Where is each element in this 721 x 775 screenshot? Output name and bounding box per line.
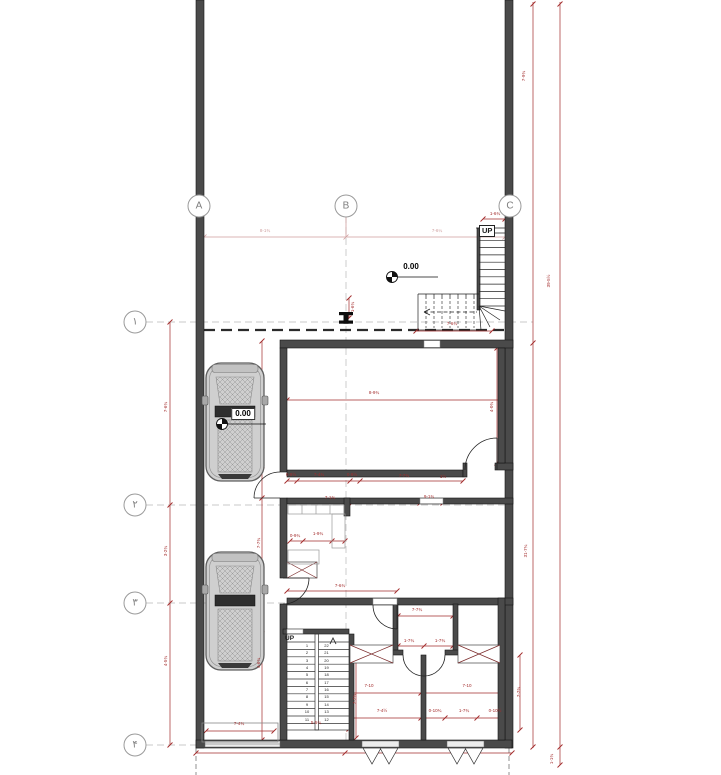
dim-label: 1-6¾: [351, 302, 356, 312]
stair-tread-number: 20: [324, 659, 328, 663]
label-overlay: A B C ۱ ۲ ۳ ۴ UP UP 0.00 0.00 8-1¾7-6¼1-…: [0, 0, 721, 775]
dim-label: 3-2¾: [164, 546, 169, 556]
dim-label: 7-7¾: [517, 687, 522, 697]
stair-tread-number: 21: [324, 651, 328, 655]
grid-bubble-a: A: [188, 195, 211, 218]
dim-label: 4-0¾: [490, 402, 495, 412]
stair-bottom-up-label: UP: [285, 636, 294, 643]
dim-label: 7-6¾: [164, 402, 169, 412]
dim-label: 1½: [440, 475, 446, 480]
dim-label: 7-6¼: [432, 229, 442, 234]
stair-tread-number: 11: [305, 718, 309, 722]
stair-tread-number: 14: [324, 703, 328, 707]
stair-tread-number: 3: [306, 659, 308, 663]
dim-label: 0-10½: [489, 709, 502, 714]
dim-label: 7-10: [364, 684, 373, 689]
stair-tread-number: 2: [306, 651, 308, 655]
level-marker-garage: 0.00: [231, 408, 255, 420]
dim-label: 0-9½: [347, 473, 357, 478]
dim-label: 7-7¾: [412, 608, 422, 613]
stair-tread-number: 6: [306, 681, 308, 685]
dim-label: 7-4¾: [234, 722, 244, 727]
stair-tread-number: 22: [324, 644, 328, 648]
stair-tread-number: 9: [306, 703, 308, 707]
grid-bubble-c: C: [499, 195, 522, 218]
stair-tread-number: 13: [324, 710, 328, 714]
stair-tread-number: 17: [324, 681, 328, 685]
dim-label: 0-10¾: [429, 709, 442, 714]
dim-label: 7-4¾: [314, 473, 324, 478]
stair-tread-number: 7: [306, 688, 308, 692]
stair-tread-number: 5: [306, 673, 308, 677]
dim-label: 7-10: [462, 684, 471, 689]
dim-label: 8-1¾: [260, 229, 270, 234]
dim-label: 8-9¾: [369, 391, 379, 396]
stair-tread-number: 4: [306, 666, 308, 670]
dim-label: 1-7¾: [435, 639, 445, 644]
stair-tread-number: 1: [306, 644, 308, 648]
dim-label: 0-9¾: [290, 534, 300, 539]
dim-label: 0-9½: [286, 473, 296, 478]
dim-label: 39-5½: [547, 275, 552, 288]
dim-label: 9-1¾: [424, 495, 434, 500]
dim-label: 7-7¾: [353, 694, 358, 704]
dim-label: 7-6¾: [335, 584, 345, 589]
grid-bubble-b: B: [335, 195, 358, 218]
dim-label: 7-9¾: [522, 71, 527, 81]
dim-label: 7-6¾: [447, 322, 457, 327]
stair-tread-number: 10: [305, 710, 309, 714]
grid-bubble-3: ۳: [124, 592, 147, 615]
dim-label: 1-7¾: [459, 709, 469, 714]
grid-bubble-4: ۴: [124, 734, 147, 757]
grid-bubble-1: ۱: [124, 311, 147, 334]
stair-top-up-label: UP: [479, 225, 495, 237]
level-marker-entry: 0.00: [403, 263, 419, 271]
dim-label: 7-7¾: [257, 538, 262, 548]
grid-bubble-2: ۲: [124, 494, 147, 517]
dim-label: 7-7¾: [399, 474, 409, 479]
dim-label: 4-5¾: [164, 656, 169, 666]
dim-label: 4-6¾: [257, 658, 262, 668]
stair-tread-number: 18: [324, 673, 328, 677]
dim-label: 5-5¾: [311, 721, 321, 726]
stair-tread-number: 16: [324, 688, 328, 692]
dim-label: 7-4½: [377, 709, 387, 714]
dim-label: 31-7¾: [524, 545, 529, 558]
dim-label: 1-1¾: [550, 754, 555, 764]
stair-tread-number: 15: [324, 695, 328, 699]
dim-label: 1-6¾: [490, 212, 500, 217]
stair-tread-number: 8: [306, 695, 308, 699]
stair-tread-number: 19: [324, 666, 328, 670]
dim-label: 7-1¾: [325, 496, 335, 501]
dim-label: 1-7¾: [404, 639, 414, 644]
floor-plan-page: A B C ۱ ۲ ۳ ۴ UP UP 0.00 0.00 8-1¾7-6¼1-…: [0, 0, 721, 775]
stair-tread-number: 12: [324, 718, 328, 722]
dim-label: 1-9¾: [313, 532, 323, 537]
